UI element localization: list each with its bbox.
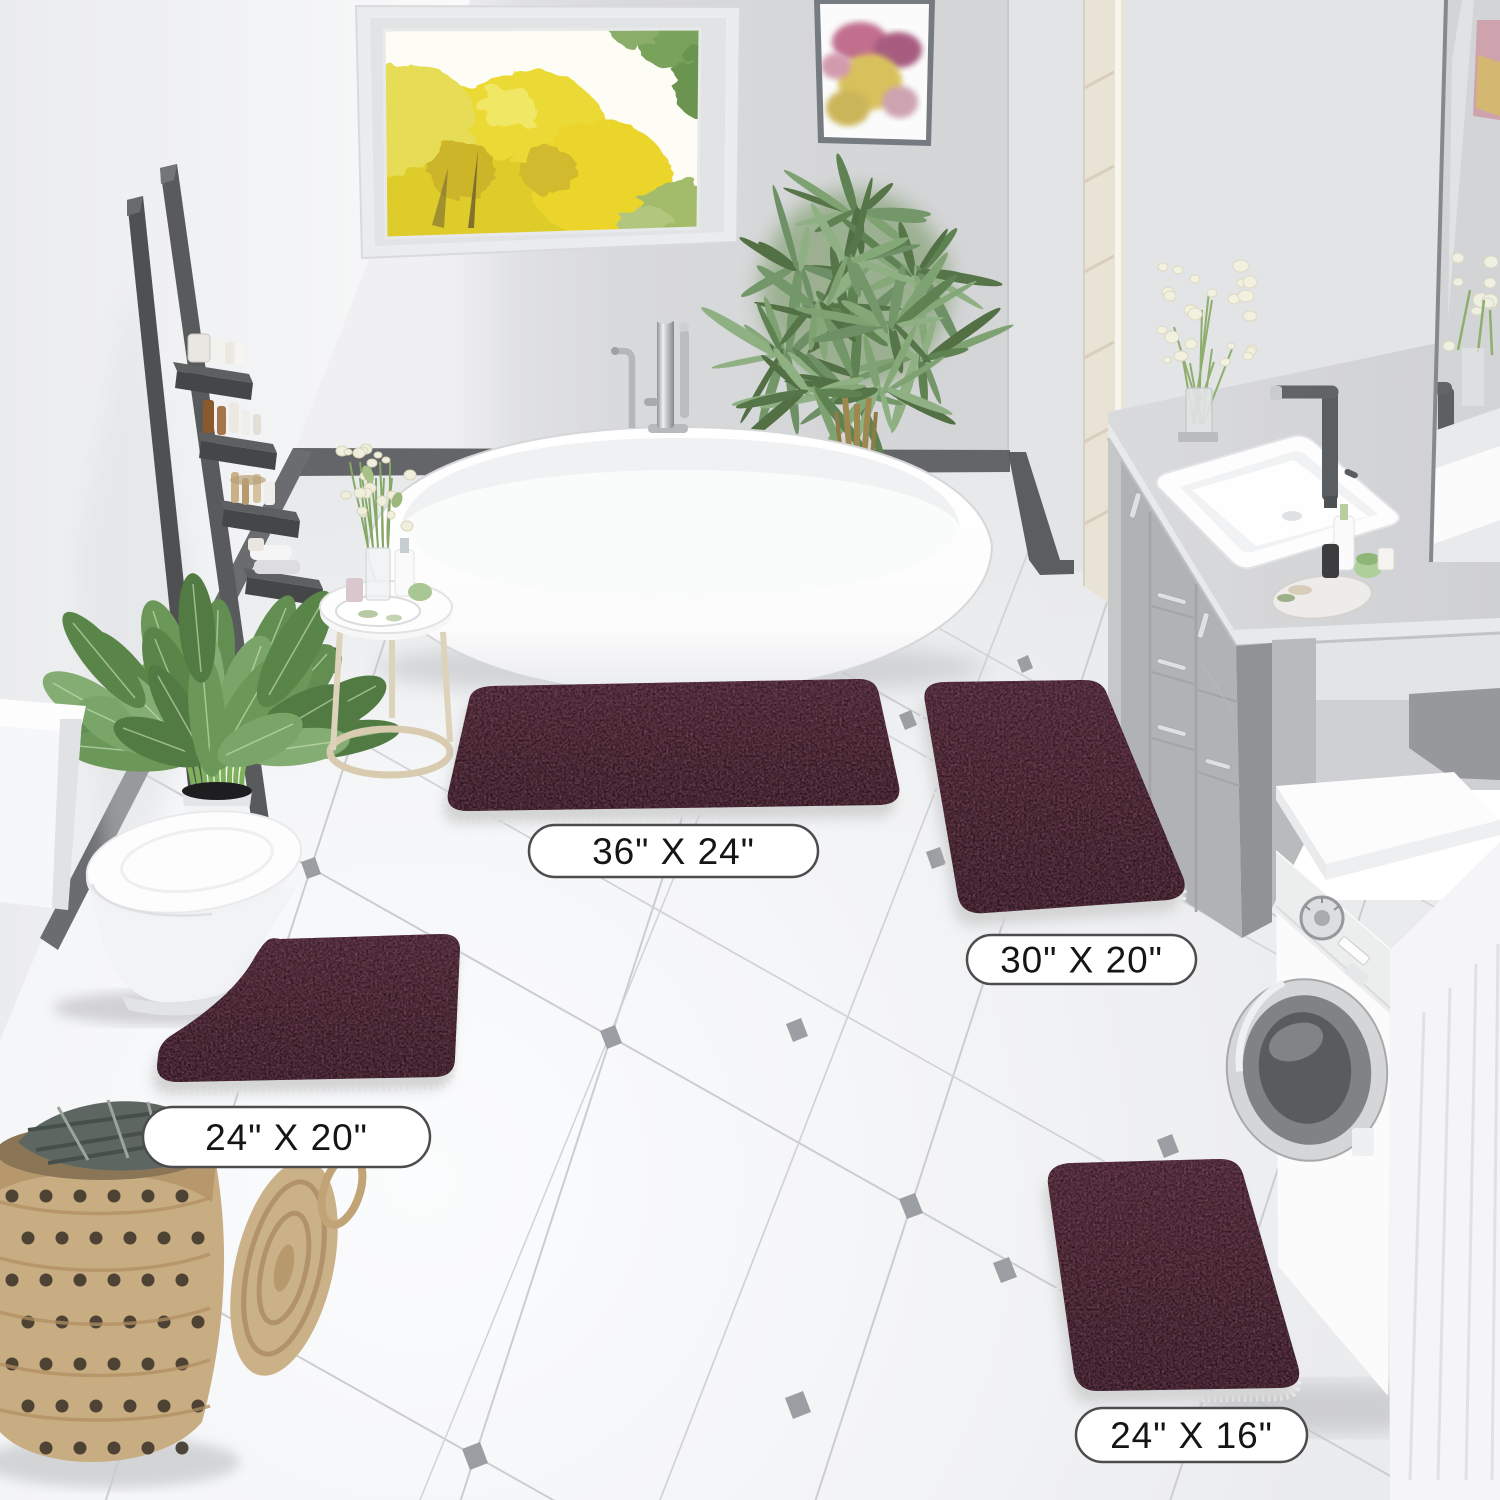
svg-text:36" X 24": 36" X 24" bbox=[592, 831, 755, 872]
svg-text:24" X 20": 24" X 20" bbox=[205, 1117, 368, 1158]
svg-text:30" X 20": 30" X 20" bbox=[1000, 940, 1163, 981]
svg-text:24" X 16": 24" X 16" bbox=[1110, 1415, 1273, 1456]
